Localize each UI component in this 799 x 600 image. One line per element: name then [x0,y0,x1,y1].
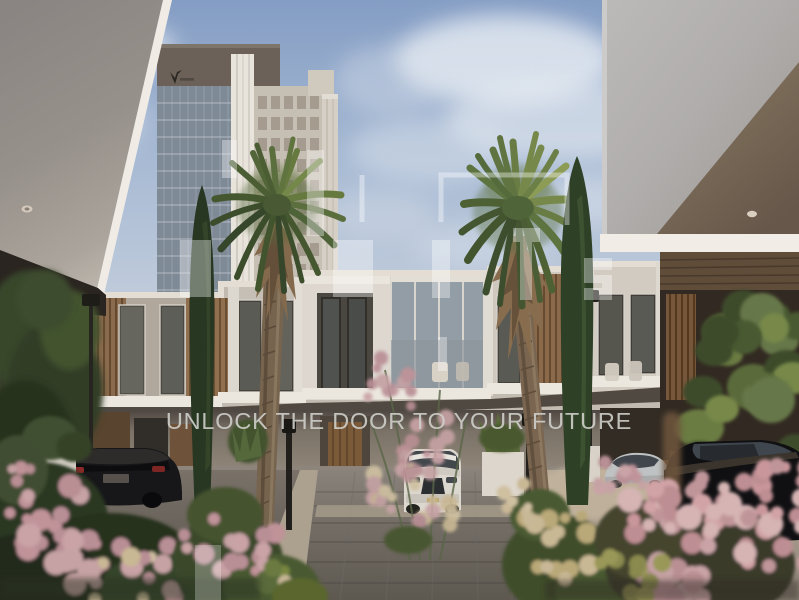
svg-text:UNLOCK THE DOOR TO YOUR FUTURE: UNLOCK THE DOOR TO YOUR FUTURE [166,408,632,434]
